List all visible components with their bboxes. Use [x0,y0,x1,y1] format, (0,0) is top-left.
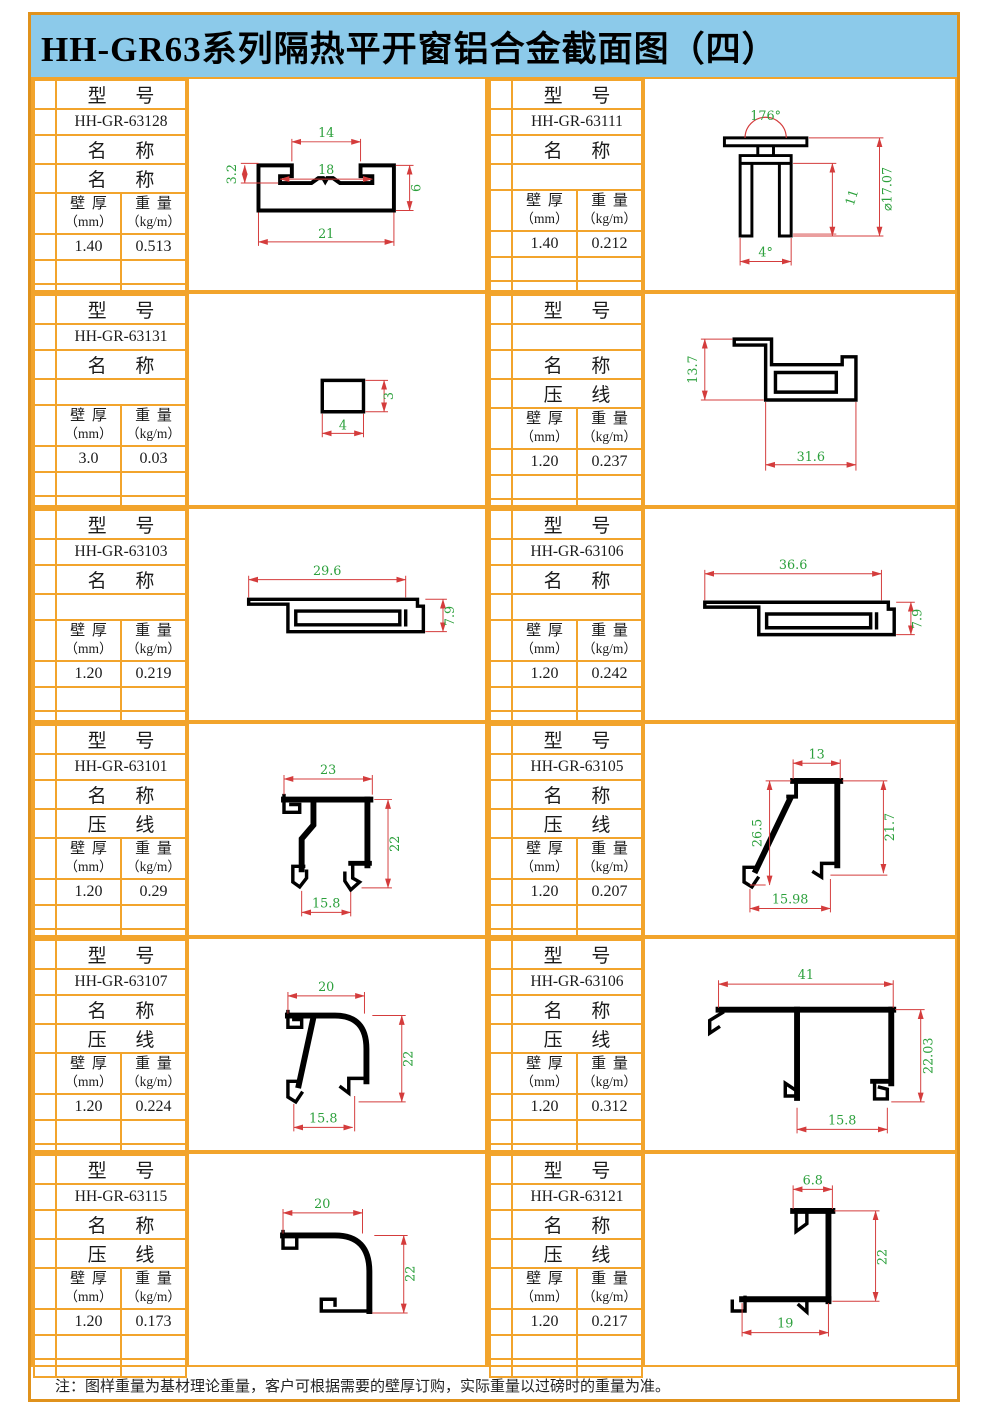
dim-label: 21.7 [883,813,898,841]
dimensions: 41 22.03 15.8 [719,968,937,1133]
model-label: 型 号 [512,940,642,969]
dim-label: 3.2 [225,164,240,184]
dim-label: 22.03 [921,1038,936,1075]
section-drawing-yaxian-1: 13.7 31.6 [645,294,955,505]
section-drawing-63106-wide: 41 22.03 15.8 [645,939,955,1150]
profile-block-63115: 型 号 HH-GR-63115 名 称 压 线 壁 厚（mm） 重 量（kg/m… [31,1152,487,1367]
model-label: 型 号 [56,940,186,969]
thickness-header: 壁 厚（mm） [512,190,577,231]
thickness-header: 壁 厚（mm） [512,838,577,879]
model-label: 型 号 [56,295,186,324]
profile-outline [710,1010,894,1099]
drawing-area: 41 22.03 15.8 [643,939,955,1150]
dim-label: 176° [750,109,781,124]
weight-header: 重 量（kg/m） [577,190,642,231]
profile-outline [724,138,806,236]
profile-outline [734,339,856,400]
dim-label: 22 [402,1051,417,1067]
profile-grid: 型 号 HH-GR-63128 名 称 名 称 壁 厚（mm） 重 量（kg/m… [31,77,957,1367]
model-value: HH-GR-63103 [56,539,186,565]
spec-table: 型 号 HH-GR-63131 名 称 壁 厚（mm） 重 量（kg/m） 3.… [33,294,187,515]
thickness-value: 1.20 [56,1309,121,1335]
model-value: HH-GR-63105 [512,754,642,780]
section-drawing-63106-flat: 36.6 7.9 [645,509,955,720]
dim-label: 23 [320,763,336,778]
name-value: 压 线 [512,379,642,408]
model-value: HH-GR-63101 [56,754,186,780]
dim-label: 36.6 [779,558,807,573]
thickness-value: 3.0 [56,446,121,472]
profile-block-63131: 型 号 HH-GR-63131 名 称 壁 厚（mm） 重 量（kg/m） 3.… [31,292,487,507]
profile-block-63111: 型 号 HH-GR-63111 名 称 壁 厚（mm） 重 量（kg/m） 1.… [487,77,957,292]
dim-label: 22 [388,836,403,852]
drawing-area: 36.6 7.9 [643,509,955,720]
dim-label: 31.6 [797,450,825,465]
model-value: HH-GR-63107 [56,969,186,995]
dim-label: 20 [314,1197,330,1212]
drawing-area: 20 22 [187,1154,485,1365]
thickness-header: 壁 厚（mm） [56,1268,121,1309]
weight-value: 0.219 [121,661,186,687]
dim-label: 4° [758,246,773,261]
name-label: 名 称 [512,350,642,379]
model-label: 型 号 [512,1155,642,1184]
footer-note: 注：图样重量为基材理论重量，客户可根据需要的壁厚订购，实际重量以过磅时的重量为准… [55,1375,670,1396]
spec-table: 型 号 HH-GR-63111 名 称 壁 厚（mm） 重 量（kg/m） 1.… [489,79,643,300]
dim-label: 29.6 [313,564,341,579]
profile-outline [283,1232,370,1311]
spec-table: 型 号 HH-GR-63107 名 称 压 线 壁 厚（mm） 重 量（kg/m… [33,939,187,1163]
section-drawing-63107: 20 22 15.8 [189,939,485,1150]
weight-header: 重 量（kg/m） [577,1053,642,1094]
catalog-page: HH-GR63系列隔热平开窗铝合金截面图（四） 型 号 HH-GR-63128 … [0,0,1000,1415]
profile-block-63105: 型 号 HH-GR-63105 名 称 压 线 壁 厚（mm） 重 量（kg/m… [487,722,957,937]
dim-label: 13.7 [686,355,701,383]
weight-header: 重 量（kg/m） [121,193,186,234]
spec-table: 型 号 名 称 压 线 壁 厚（mm） 重 量（kg/m） 1.200.237 [489,294,643,518]
model-value: HH-GR-63115 [56,1184,186,1210]
thickness-value: 1.20 [56,661,121,687]
dim-label: 22 [404,1266,419,1282]
drawing-area: 4 3 [187,294,485,505]
profile-block-63106-wide: 型 号 HH-GR-63106 名 称 压 线 壁 厚（mm） 重 量（kg/m… [487,937,957,1152]
name-value: 压 线 [56,1239,186,1268]
thickness-header: 壁 厚（mm） [56,838,121,879]
dimensions: 20 22 [283,1197,419,1313]
page-frame: HH-GR63系列隔热平开窗铝合金截面图（四） 型 号 HH-GR-63128 … [28,12,960,1402]
weight-header: 重 量（kg/m） [577,1268,642,1309]
thickness-header: 壁 厚（mm） [512,1053,577,1094]
thickness-value: 1.20 [512,879,577,905]
name-label: 名 称 [56,135,186,164]
thickness-header: 壁 厚（mm） [512,1268,577,1309]
model-value: HH-GR-63131 [56,324,186,350]
weight-value: 0.173 [121,1309,186,1335]
thickness-value: 1.40 [512,231,577,257]
spec-table: 型 号 HH-GR-63115 名 称 压 线 壁 厚（mm） 重 量（kg/m… [33,1154,187,1378]
thickness-header: 壁 厚（mm） [56,193,121,234]
weight-header: 重 量（kg/m） [121,1268,186,1309]
model-value: HH-GR-63106 [512,539,642,565]
drawing-area: 14 18 3.2 6 21 [187,79,485,290]
weight-value: 0.224 [121,1094,186,1120]
section-drawing-63101: 23 22 15.8 [189,724,485,935]
thickness-header: 壁 厚（mm） [512,620,577,661]
dim-label: 22 [875,1249,890,1265]
section-drawing-63128: 14 18 3.2 6 21 [189,79,485,290]
thickness-value: 1.20 [56,1094,121,1120]
weight-value: 0.312 [577,1094,642,1120]
profile-block-63128: 型 号 HH-GR-63128 名 称 名 称 壁 厚（mm） 重 量（kg/m… [31,77,487,292]
dim-label: 14 [318,126,334,141]
drawing-area: 13.7 31.6 [643,294,955,505]
weight-header: 重 量（kg/m） [577,838,642,879]
profile-block-yaxian-1: 型 号 名 称 压 线 壁 厚（mm） 重 量（kg/m） 1.200.237 [487,292,957,507]
section-drawing-63103: 29.6 7.9 [189,509,485,720]
name-label: 名 称 [512,135,642,164]
name-value [56,594,186,620]
weight-value: 0.207 [577,879,642,905]
dim-label: 7.9 [443,606,458,626]
drawing-area: 176° ⌀17.07 11 4° [643,79,955,290]
thickness-header: 壁 厚（mm） [512,408,577,449]
profile-outline [322,380,363,411]
model-label: 型 号 [512,295,642,324]
dim-label: 4 [339,418,347,433]
weight-header: 重 量（kg/m） [121,838,186,879]
weight-value: 0.29 [121,879,186,905]
dim-label: 15.98 [772,893,809,908]
section-drawing-63115: 20 22 [189,1154,485,1365]
thickness-value: 1.20 [512,449,577,475]
thickness-header: 壁 厚（mm） [56,620,121,661]
name-value [512,164,642,190]
name-value: 压 线 [512,1024,642,1053]
dim-label: 3 [382,392,397,400]
profile-outline [249,599,424,631]
weight-value: 0.242 [577,661,642,687]
model-value: HH-GR-63111 [512,109,642,135]
section-drawing-63105: 13 26.5 21.7 15.98 [645,724,955,935]
profile-block-63106-flat: 型 号 HH-GR-63106 名 称 壁 厚（mm） 重 量（kg/m） 1.… [487,507,957,722]
profile-outline [284,796,370,890]
dim-label: 15.8 [828,1113,856,1128]
name-value: 压 线 [512,809,642,838]
drawing-area: 29.6 7.9 [187,509,485,720]
name-value: 名 称 [56,164,186,193]
weight-header: 重 量（kg/m） [121,405,186,446]
thickness-header: 壁 厚（mm） [56,1053,121,1094]
model-label: 型 号 [56,510,186,539]
drawing-area: 23 22 15.8 [187,724,485,935]
dimensions: 4 3 [322,380,397,437]
thickness-value: 1.20 [56,879,121,905]
spec-table: 型 号 HH-GR-63103 名 称 壁 厚（mm） 重 量（kg/m） 1.… [33,509,187,730]
profile-block-63121: 型 号 HH-GR-63121 名 称 压 线 壁 厚（mm） 重 量（kg/m… [487,1152,957,1367]
dim-label: 13 [809,747,825,762]
name-value: 压 线 [512,1239,642,1268]
dim-label: 20 [318,980,334,995]
weight-value: 0.217 [577,1309,642,1335]
drawing-area: 20 22 15.8 [187,939,485,1150]
name-value: 压 线 [56,809,186,838]
model-value [512,324,642,350]
profile-block-63103: 型 号 HH-GR-63103 名 称 壁 厚（mm） 重 量（kg/m） 1.… [31,507,487,722]
name-label: 名 称 [512,1210,642,1239]
weight-value: 0.513 [121,234,186,260]
thickness-value: 1.20 [512,1309,577,1335]
spec-table: 型 号 HH-GR-63105 名 称 压 线 壁 厚（mm） 重 量（kg/m… [489,724,643,948]
model-label: 型 号 [512,510,642,539]
model-value: HH-GR-63128 [56,109,186,135]
weight-header: 重 量（kg/m） [577,620,642,661]
name-label: 名 称 [512,995,642,1024]
dim-label: 6.8 [803,1173,823,1188]
weight-header: 重 量（kg/m） [121,620,186,661]
dim-label: 21 [318,227,334,242]
model-value: HH-GR-63106 [512,969,642,995]
name-label: 名 称 [56,1210,186,1239]
model-label: 型 号 [56,1155,186,1184]
thickness-value: 1.20 [512,661,577,687]
model-label: 型 号 [512,80,642,109]
section-drawing-63121: 6.8 22 19 [645,1154,955,1365]
dim-label: 11 [843,188,862,208]
model-label: 型 号 [56,80,186,109]
model-label: 型 号 [56,725,186,754]
profile-block-63101: 型 号 HH-GR-63101 名 称 压 线 壁 厚（mm） 重 量（kg/m… [31,722,487,937]
name-label: 名 称 [56,350,186,379]
dimensions: 176° ⌀17.07 11 4° [740,109,895,265]
thickness-value: 1.20 [512,1094,577,1120]
spec-table: 型 号 HH-GR-63106 名 称 压 线 壁 厚（mm） 重 量（kg/m… [489,939,643,1163]
weight-header: 重 量（kg/m） [121,1053,186,1094]
name-label: 名 称 [512,565,642,594]
drawing-area: 13 26.5 21.7 15.98 [643,724,955,935]
dimensions: 6.8 22 19 [742,1173,890,1336]
name-label: 名 称 [56,565,186,594]
section-drawing-63111: 176° ⌀17.07 11 4° [645,79,955,290]
drawing-area: 6.8 22 19 [643,1154,955,1365]
section-drawing-63131: 4 3 [189,294,485,505]
thickness-value: 1.40 [56,234,121,260]
model-value: HH-GR-63121 [512,1184,642,1210]
dim-label: 15.8 [309,1112,337,1127]
dim-label: 6 [409,184,424,192]
page-title: HH-GR63系列隔热平开窗铝合金截面图（四） [41,21,778,72]
weight-value: 0.237 [577,449,642,475]
dim-label: 15.8 [312,897,340,912]
model-label: 型 号 [512,725,642,754]
weight-value: 0.03 [121,446,186,472]
dim-label: 26.5 [751,819,766,847]
profile-outline [288,1012,367,1102]
dim-label: 7.9 [911,609,926,629]
dim-label: 19 [777,1317,793,1332]
thickness-header: 壁 厚（mm） [56,405,121,446]
weight-header: 重 量（kg/m） [577,408,642,449]
name-value: 压 线 [56,1024,186,1053]
name-label: 名 称 [56,780,186,809]
name-label: 名 称 [56,995,186,1024]
name-label: 名 称 [512,780,642,809]
title-bar: HH-GR63系列隔热平开窗铝合金截面图（四） [31,15,957,77]
dim-label: 18 [318,163,334,178]
spec-table: 型 号 HH-GR-63121 名 称 压 线 壁 厚（mm） 重 量（kg/m… [489,1154,643,1378]
spec-table: 型 号 HH-GR-63128 名 称 名 称 壁 厚（mm） 重 量（kg/m… [33,79,187,303]
profile-outline [705,602,894,634]
spec-table: 型 号 HH-GR-63101 名 称 压 线 壁 厚（mm） 重 量（kg/m… [33,724,187,948]
profile-block-63107: 型 号 HH-GR-63107 名 称 压 线 壁 厚（mm） 重 量（kg/m… [31,937,487,1152]
name-value [512,594,642,620]
spec-table: 型 号 HH-GR-63106 名 称 壁 厚（mm） 重 量（kg/m） 1.… [489,509,643,730]
name-value [56,379,186,405]
dim-label: 41 [798,968,814,983]
weight-value: 0.212 [577,231,642,257]
profile-outline [732,1211,832,1312]
dim-label: ⌀17.07 [880,167,895,211]
